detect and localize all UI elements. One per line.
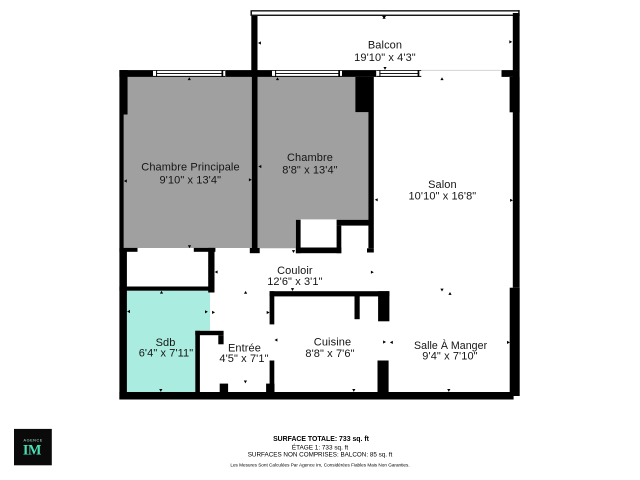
svg-text:SURFACES NON COMPRISES: BALCON: SURFACES NON COMPRISES: BALCON: 85 sq. f… xyxy=(248,451,393,458)
svg-text:Balcon: Balcon xyxy=(368,39,402,51)
svg-text:Chambre Principale: Chambre Principale xyxy=(141,161,239,173)
svg-text:Salon: Salon xyxy=(428,179,457,191)
svg-text:8'8" x 13'4": 8'8" x 13'4" xyxy=(282,164,337,176)
svg-text:ÉTAGE 1: 733 sq. ft: ÉTAGE 1: 733 sq. ft xyxy=(292,443,349,452)
svg-text:SURFACE TOTALE: 733 sq. ft: SURFACE TOTALE: 733 sq. ft xyxy=(273,436,370,443)
svg-text:9'10" x 13'4": 9'10" x 13'4" xyxy=(159,175,221,187)
svg-text:8'8" x 7'6": 8'8" x 7'6" xyxy=(305,348,354,360)
svg-text:19'10" x 4'3": 19'10" x 4'3" xyxy=(354,52,416,64)
svg-text:6'4" x 7'11": 6'4" x 7'11" xyxy=(139,347,194,359)
svg-text:IM: IM xyxy=(23,443,41,459)
svg-text:10'10" x 16'8": 10'10" x 16'8" xyxy=(408,191,476,203)
svg-text:12'6" x 3'1": 12'6" x 3'1" xyxy=(267,276,322,288)
svg-text:Chambre: Chambre xyxy=(287,152,333,164)
svg-text:4'5" x 7'1": 4'5" x 7'1" xyxy=(219,353,268,365)
svg-text:Les Mesures Sont Calculées Par: Les Mesures Sont Calculées Par Agence Im… xyxy=(230,463,409,468)
svg-text:Cuisine: Cuisine xyxy=(314,337,351,349)
svg-text:9'4" x 7'10": 9'4" x 7'10" xyxy=(422,350,477,362)
